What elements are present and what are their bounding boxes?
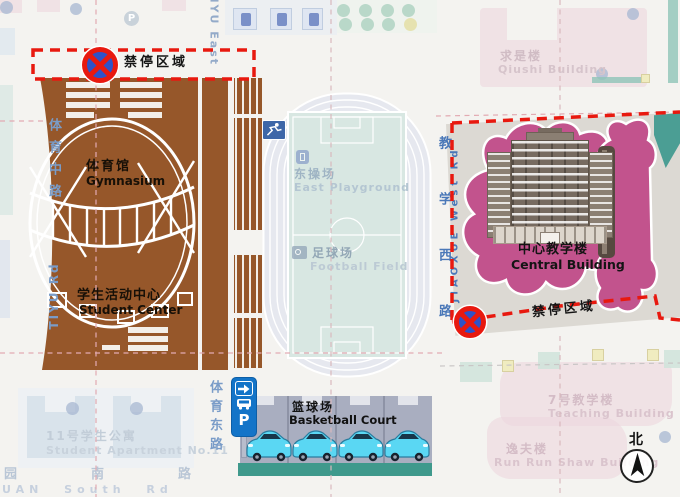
teal-block [538, 352, 560, 369]
label-teaching7-en: Teaching Building No.7 [548, 408, 680, 421]
service-block [641, 74, 650, 83]
court-tile [270, 8, 292, 30]
tree-icon [337, 4, 350, 17]
bus-icon [236, 398, 252, 410]
map-badge-icon [659, 431, 671, 443]
faded-block [0, 28, 15, 55]
service-block [647, 349, 659, 361]
label-football-field-zh: 足球场 [312, 247, 354, 261]
court-key [398, 396, 418, 405]
service-block [592, 349, 604, 361]
service-block [502, 360, 514, 372]
arrow-right-icon [235, 381, 253, 396]
label-east-playground-en: East Playground [294, 182, 410, 195]
parking-area-icon: P [124, 11, 139, 26]
no-stopping-sign [82, 47, 118, 83]
label-qiushi-en: Qiushi Building [498, 64, 607, 77]
building-tower [511, 140, 589, 238]
label-central-building-zh: 中心教学楼 [518, 243, 588, 258]
label-teaching7-zh: 7号教学楼 [548, 394, 614, 408]
teal-strip [592, 77, 647, 83]
road-tiyu-east-top: TIYU East [208, 0, 221, 72]
runner-icon [262, 120, 286, 140]
roadside-strip [0, 85, 13, 215]
road-tiyu-east: 体育东路 [205, 380, 224, 456]
football-icon-ball [295, 249, 301, 255]
central-building-illustration [487, 128, 613, 246]
playground-icon-inner [300, 153, 305, 161]
label-qiushi-zh: 求是楼 [500, 50, 542, 64]
parking-sign: P [231, 377, 257, 437]
teal-block [664, 350, 680, 368]
tree-icon [381, 4, 394, 17]
road-south-zh: 园南路 [4, 468, 265, 483]
tree-icon [359, 4, 372, 17]
court-key [254, 396, 274, 405]
qiushi-notch [507, 0, 557, 40]
compass-icon [620, 449, 654, 483]
road-jiaoxue-west-en: JIAOXUE West Rd [450, 120, 461, 330]
faded-building-block [162, 0, 186, 11]
map-badge-icon [0, 1, 13, 14]
label-shaw-zh: 逸夫楼 [506, 443, 548, 457]
track-illustration [262, 92, 432, 378]
label-gymnasium-zh: 体育馆 [86, 160, 131, 175]
teal-strip [668, 0, 678, 83]
tree-icon [339, 18, 352, 31]
tree-icon [404, 18, 417, 31]
court-tile [233, 8, 257, 30]
map-badge-icon [70, 3, 82, 15]
playground-icon [296, 150, 309, 164]
label-east-playground-zh: 东操场 [294, 168, 336, 182]
teal-strip [238, 463, 432, 476]
court-tile [302, 8, 323, 30]
label-gymnasium-en: Gymnasium [86, 175, 165, 189]
label-apartment-en: Student Apartment No.11 [46, 445, 229, 458]
parked-cars [244, 424, 436, 464]
label-student-center-en: Student Center [79, 304, 182, 318]
label-no-parking-left: 禁停区域 [124, 56, 188, 71]
road-south-en: UAN South Rd [2, 484, 173, 497]
parking-sign-letter: P [239, 412, 250, 429]
label-central-building-en: Central Building [511, 258, 625, 272]
court-icon [309, 13, 319, 26]
gymnasium-illustration [28, 75, 264, 375]
label-football-field-en: Football Field [310, 261, 409, 274]
road-tiyu-rd: TIYU Rd [47, 246, 61, 346]
campus-map: P 求是楼 Qiushi Building 11号学生公寓 Student Ap… [0, 0, 680, 497]
map-badge-icon [66, 402, 79, 415]
court-icon [277, 13, 287, 26]
label-apartment-zh: 11号学生公寓 [46, 430, 137, 444]
faded-building-block [37, 0, 60, 12]
no-stopping-sign [454, 306, 486, 338]
tree-icon [402, 4, 415, 17]
compass-north-label: 北 [629, 432, 643, 448]
tree-icon [361, 18, 374, 31]
football-icon [292, 246, 307, 259]
map-badge-icon [627, 8, 639, 20]
tree-icon [382, 18, 395, 31]
court-key [350, 396, 370, 405]
roadside-strip [0, 240, 10, 318]
teal-block [460, 362, 492, 382]
court-icon [241, 13, 251, 26]
map-badge-icon [130, 402, 143, 415]
label-student-center-zh: 学生活动中心 [77, 289, 161, 304]
road-tiyu-middle: 体育中路 [44, 118, 63, 206]
